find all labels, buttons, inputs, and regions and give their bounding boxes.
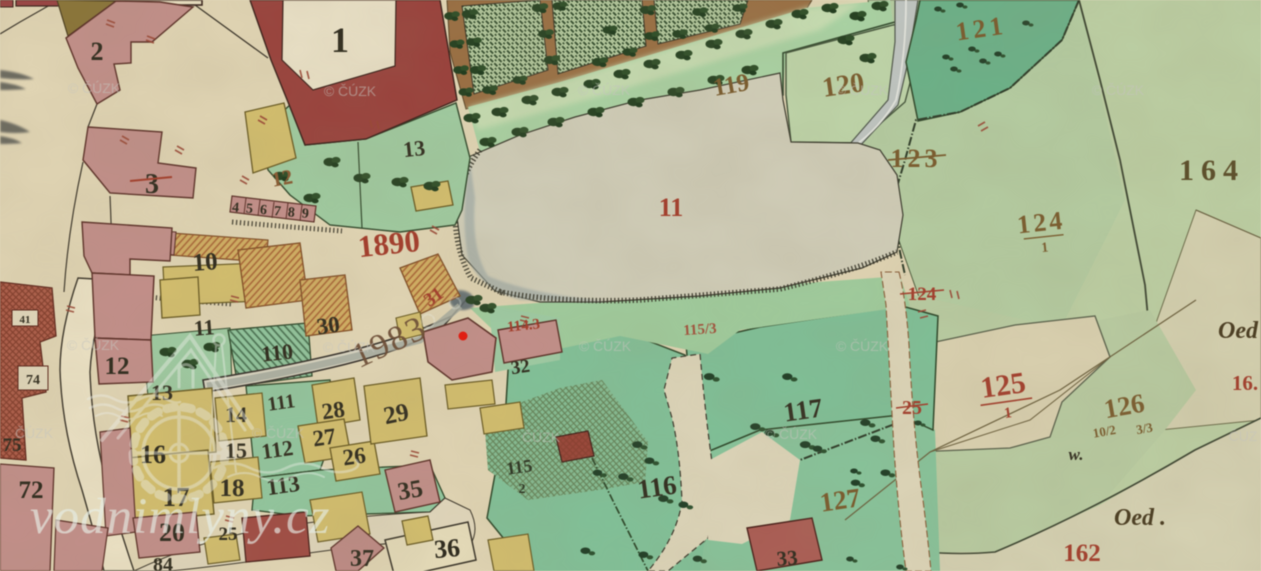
svg-text:© ČÚZK: © ČÚZK bbox=[765, 426, 818, 442]
svg-text:32: 32 bbox=[509, 356, 531, 379]
svg-text:12: 12 bbox=[105, 353, 130, 380]
svg-text:74: 74 bbox=[26, 373, 40, 388]
svg-text:© ČÚZK: © ČÚZK bbox=[324, 83, 377, 99]
svg-text:116: 116 bbox=[636, 469, 679, 504]
svg-text:2: 2 bbox=[519, 482, 526, 497]
svg-text:© ČÚZK: © ČÚZK bbox=[579, 338, 632, 354]
svg-text:11: 11 bbox=[193, 314, 215, 340]
svg-text:© ČÚZK: © ČÚZK bbox=[578, 82, 631, 98]
svg-text:84: 84 bbox=[153, 554, 173, 571]
svg-text:Oed .: Oed . bbox=[1114, 505, 1166, 531]
svg-text:114.3: 114.3 bbox=[506, 316, 540, 335]
svg-text:vodnimlyny.cz: vodnimlyny.cz bbox=[30, 489, 331, 545]
svg-text:© ČÚZK: © ČÚZK bbox=[68, 80, 121, 96]
svg-text:36: 36 bbox=[433, 533, 461, 564]
svg-text:3/3: 3/3 bbox=[1135, 419, 1154, 437]
svg-text:41: 41 bbox=[20, 314, 31, 326]
svg-text:11: 11 bbox=[659, 193, 684, 222]
svg-text:© ČÚZK: © ČÚZK bbox=[1092, 82, 1145, 98]
svg-text:© ČÚZK: © ČÚZK bbox=[67, 337, 120, 353]
svg-text:27: 27 bbox=[311, 424, 337, 452]
svg-text:35: 35 bbox=[396, 475, 425, 506]
svg-text:ČÚZK: ČÚZK bbox=[522, 429, 561, 445]
svg-text:115: 115 bbox=[505, 455, 534, 478]
svg-text:ČÚZ: ČÚZ bbox=[1229, 428, 1258, 444]
svg-text:© ČÚZK: © ČÚZK bbox=[252, 425, 305, 441]
svg-text:3: 3 bbox=[145, 169, 159, 200]
svg-text:30: 30 bbox=[315, 312, 341, 340]
svg-text:127: 127 bbox=[818, 482, 862, 517]
svg-text:10: 10 bbox=[192, 248, 219, 277]
svg-text:© ČÚZK: © ČÚZK bbox=[836, 82, 889, 98]
svg-text:33: 33 bbox=[776, 545, 799, 571]
svg-text:28: 28 bbox=[320, 397, 346, 425]
svg-text:110: 110 bbox=[260, 338, 294, 366]
svg-text:26: 26 bbox=[341, 443, 367, 471]
svg-text:1890: 1890 bbox=[356, 223, 421, 264]
svg-text:2: 2 bbox=[91, 37, 104, 66]
svg-text:16.: 16. bbox=[1232, 371, 1258, 395]
svg-text:13: 13 bbox=[402, 135, 426, 162]
svg-text:164: 164 bbox=[1179, 154, 1245, 187]
svg-text:w.: w. bbox=[1069, 445, 1084, 464]
svg-text:12: 12 bbox=[270, 164, 295, 191]
svg-text:ČÚZK: ČÚZK bbox=[15, 425, 54, 441]
svg-text:117: 117 bbox=[782, 392, 825, 427]
svg-text:115/3: 115/3 bbox=[683, 321, 717, 339]
svg-text:124: 124 bbox=[1016, 206, 1067, 240]
svg-text:162: 162 bbox=[1063, 540, 1101, 567]
svg-text:© ČÚZK: © ČÚZK bbox=[836, 338, 889, 354]
svg-text:124: 124 bbox=[908, 284, 937, 305]
svg-text:25: 25 bbox=[902, 397, 922, 419]
svg-text:Oed: Oed bbox=[1218, 318, 1259, 344]
svg-text:1: 1 bbox=[331, 20, 349, 60]
svg-text:111: 111 bbox=[266, 390, 297, 416]
svg-text:© ČÚZK: © ČÚZK bbox=[323, 339, 376, 355]
svg-text:37: 37 bbox=[350, 546, 374, 571]
